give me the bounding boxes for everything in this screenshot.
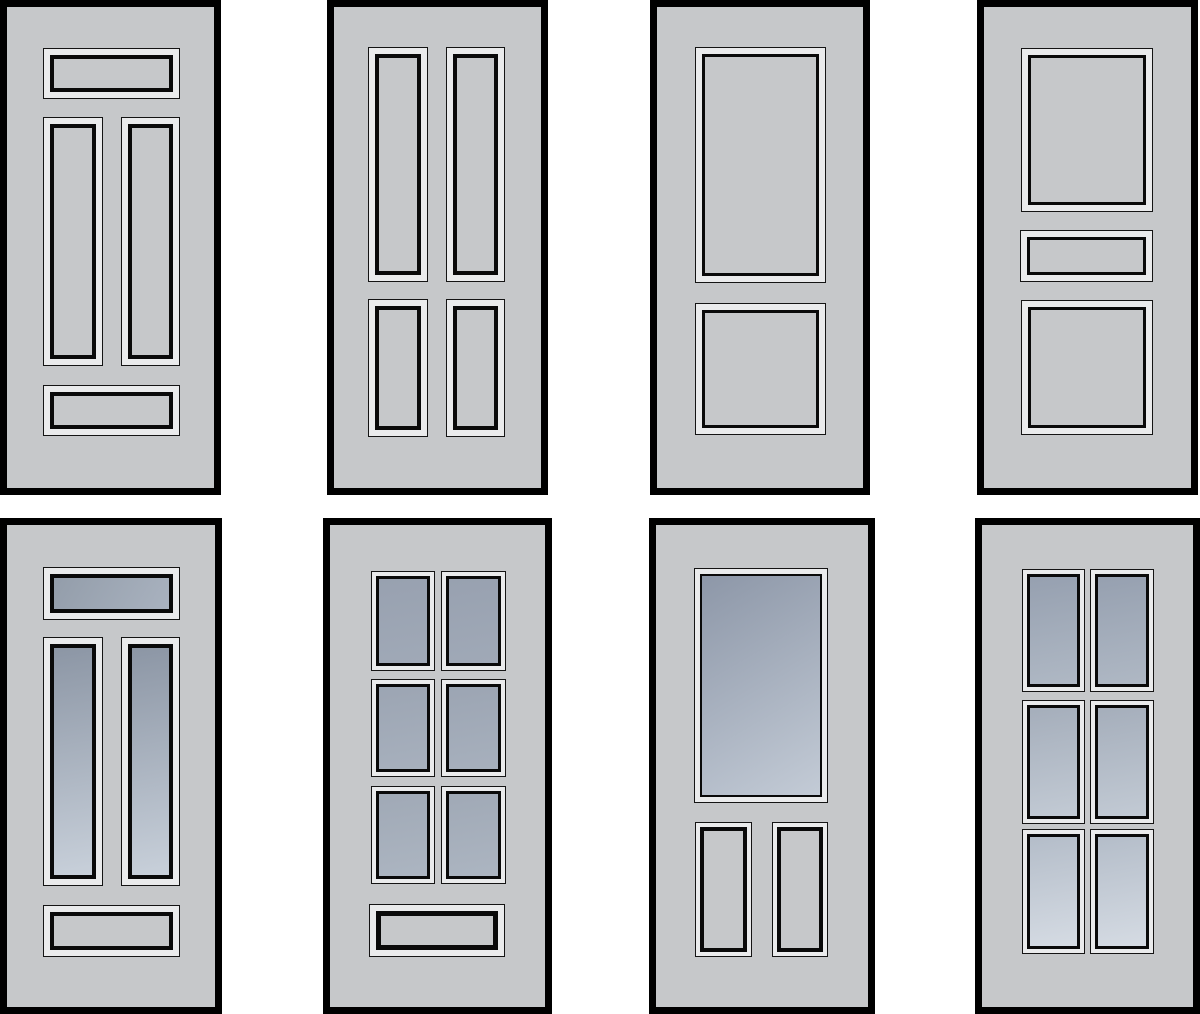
- door-1-bottom-panel: [43, 385, 180, 436]
- door-6-bottom-panel-face: [376, 911, 498, 950]
- door-2: [327, 0, 548, 495]
- door-8-glass-lite-r2c1: [1022, 700, 1085, 824]
- door-7-lower-right-panel: [772, 822, 828, 957]
- door-3: [650, 0, 870, 495]
- door-2-upper-right-panel: [446, 47, 505, 282]
- door-6-bottom-panel: [369, 904, 505, 957]
- door-4-lower-panel-face: [1028, 307, 1146, 428]
- door-6-glass-lite-r3c1-glass: [376, 791, 430, 879]
- door-6-glass-lite-r3c1: [371, 786, 435, 884]
- door-4-mid-rail-panel-face: [1027, 237, 1146, 275]
- door-7-lower-left-panel-face: [700, 827, 747, 952]
- door-8-glass-lite-r2c2: [1090, 700, 1154, 824]
- door-8: [975, 518, 1200, 1014]
- door-6-glass-lite-r3c2-glass: [446, 791, 501, 879]
- door-8-glass-lite-r3c1-glass: [1027, 834, 1080, 949]
- door-6-glass-lite-r2c2: [441, 679, 506, 777]
- door-4-upper-panel-face: [1028, 55, 1146, 205]
- door-7-upper-glass-lite: [694, 568, 828, 803]
- door-2-upper-left-panel: [368, 47, 428, 282]
- door-6-glass-lite-r3c2: [441, 786, 506, 884]
- door-8-glass-lite-r1c2-glass: [1095, 574, 1149, 687]
- door-1-left-vertical-panel-face: [50, 124, 96, 359]
- door-2-lower-right-panel-face: [453, 306, 498, 430]
- door-5-top-glass-lite: [43, 567, 180, 620]
- door-5-bottom-panel: [43, 905, 180, 957]
- door-1-bottom-panel-face: [50, 392, 173, 429]
- door-1-right-vertical-panel-face: [128, 124, 173, 359]
- door-5-right-vertical-glass-lite: [121, 637, 180, 886]
- door-2-upper-left-panel-face: [375, 54, 421, 275]
- door-8-glass-lite-r1c1-glass: [1027, 574, 1080, 687]
- door-1-top-panel: [43, 48, 180, 99]
- door-3-lower-panel-face: [702, 310, 819, 428]
- door-8-glass-lite-r2c2-glass: [1095, 705, 1149, 819]
- door-8-glass-lite-r3c2-glass: [1095, 834, 1149, 949]
- door-6-glass-lite-r1c2-glass: [446, 576, 501, 666]
- door-5-left-vertical-glass-lite: [43, 637, 103, 886]
- door-2-lower-left-panel-face: [375, 306, 421, 430]
- door-4-mid-rail-panel: [1020, 230, 1153, 282]
- door-7: [649, 518, 875, 1014]
- door-6-glass-lite-r2c1: [371, 679, 435, 777]
- door-1-right-vertical-panel: [121, 117, 180, 366]
- door-8-glass-lite-r3c2: [1090, 829, 1154, 954]
- door-3-upper-panel-face: [702, 54, 819, 276]
- door-1-left-vertical-panel: [43, 117, 103, 366]
- door-8-glass-lite-r1c1: [1022, 569, 1085, 692]
- door-8-glass-lite-r1c2: [1090, 569, 1154, 692]
- door-4: [977, 0, 1198, 495]
- door-3-lower-panel: [695, 303, 826, 435]
- door-2-upper-right-panel-face: [453, 54, 498, 275]
- door-2-lower-right-panel: [446, 299, 505, 437]
- door-6-glass-lite-r2c1-glass: [376, 684, 430, 772]
- door-1-top-panel-face: [50, 55, 173, 92]
- door-5-bottom-panel-face: [50, 912, 173, 950]
- door-6-glass-lite-r1c1: [371, 571, 435, 671]
- door-6: [323, 518, 552, 1014]
- door-8-glass-lite-r3c1: [1022, 829, 1085, 954]
- door-6-glass-lite-r1c1-glass: [376, 576, 430, 666]
- door-3-upper-panel: [695, 47, 826, 283]
- door-4-lower-panel: [1021, 300, 1153, 435]
- door-6-glass-lite-r1c2: [441, 571, 506, 671]
- door-5: [0, 518, 222, 1014]
- door-2-lower-left-panel: [368, 299, 428, 437]
- door-1: [0, 0, 221, 495]
- door-7-lower-right-panel-face: [777, 827, 823, 952]
- door-5-top-glass-lite-glass: [50, 574, 173, 613]
- door-5-right-vertical-glass-lite-glass: [128, 644, 173, 879]
- door-7-upper-glass-lite-glass: [700, 574, 822, 797]
- door-4-upper-panel: [1021, 48, 1153, 212]
- door-8-glass-lite-r2c1-glass: [1027, 705, 1080, 819]
- door-5-left-vertical-glass-lite-glass: [50, 644, 96, 879]
- door-7-lower-left-panel: [695, 822, 752, 957]
- door-6-glass-lite-r2c2-glass: [446, 684, 501, 772]
- door-designs-canvas: [0, 0, 1200, 1014]
